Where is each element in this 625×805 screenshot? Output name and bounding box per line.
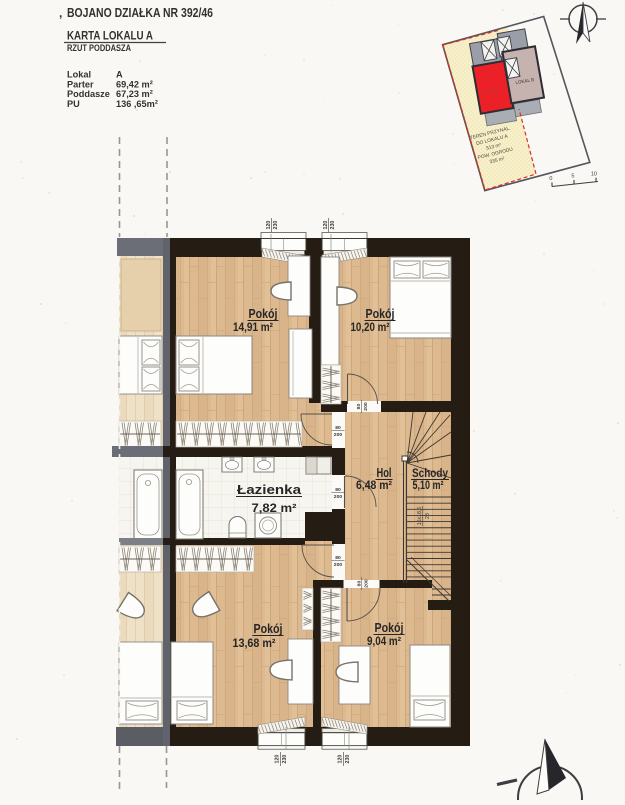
svg-text:230: 230 <box>330 221 336 230</box>
svg-text:120: 120 <box>338 755 344 764</box>
svg-text:BOJANO DZIAŁKA NR 392/46: BOJANO DZIAŁKA NR 392/46 <box>67 5 213 20</box>
svg-text:Lokal: Lokal <box>67 70 91 80</box>
svg-text:80: 80 <box>335 555 341 561</box>
svg-text:9,04 m²: 9,04 m² <box>367 634 401 648</box>
svg-text:136 ,65m²: 136 ,65m² <box>116 99 158 109</box>
svg-text:10: 10 <box>591 171 597 177</box>
svg-text:6,48 m²: 6,48 m² <box>356 478 392 492</box>
svg-text:Pokój: Pokój <box>249 306 278 321</box>
svg-text:120: 120 <box>275 755 281 764</box>
svg-text:69,42 m²: 69,42 m² <box>116 79 153 89</box>
svg-text:67,23 m²: 67,23 m² <box>116 89 153 99</box>
svg-text:10,20 m²: 10,20 m² <box>351 320 390 334</box>
svg-text:120: 120 <box>323 221 329 230</box>
svg-text:16x18,5: 16x18,5 <box>417 507 423 526</box>
svg-text:230: 230 <box>282 755 288 764</box>
svg-text:Pokój: Pokój <box>366 306 395 321</box>
svg-text:Poddasze: Poddasze <box>67 89 110 99</box>
svg-text:80: 80 <box>356 581 362 587</box>
svg-text:120: 120 <box>266 221 272 230</box>
svg-text:KARTA LOKALU A: KARTA LOKALU A <box>67 29 153 43</box>
svg-text:Parter: Parter <box>67 79 94 89</box>
svg-text:5,10 m²: 5,10 m² <box>413 478 444 492</box>
svg-text:200: 200 <box>334 494 343 500</box>
svg-text:,: , <box>59 6 62 20</box>
svg-text:28: 28 <box>425 513 431 519</box>
svg-text:200: 200 <box>363 402 369 411</box>
svg-text:RZUT PODDASZA: RZUT PODDASZA <box>67 43 131 53</box>
svg-text:200: 200 <box>334 432 343 438</box>
svg-text:Pokój: Pokój <box>254 621 283 636</box>
svg-text:7,82 m²: 7,82 m² <box>252 501 297 515</box>
svg-text:13,68 m²: 13,68 m² <box>233 636 276 650</box>
svg-text:Pokój: Pokój <box>375 620 404 635</box>
svg-text:5: 5 <box>571 173 574 179</box>
svg-text:230: 230 <box>345 755 351 764</box>
svg-text:200: 200 <box>334 562 343 568</box>
svg-text:Łazienka: Łazienka <box>237 482 302 497</box>
svg-text:PU: PU <box>67 99 80 109</box>
svg-text:14,91 m²: 14,91 m² <box>233 320 273 334</box>
svg-text:200: 200 <box>363 579 369 588</box>
svg-text:230: 230 <box>273 221 279 230</box>
svg-text:0: 0 <box>549 176 552 182</box>
svg-text:A: A <box>116 70 123 80</box>
